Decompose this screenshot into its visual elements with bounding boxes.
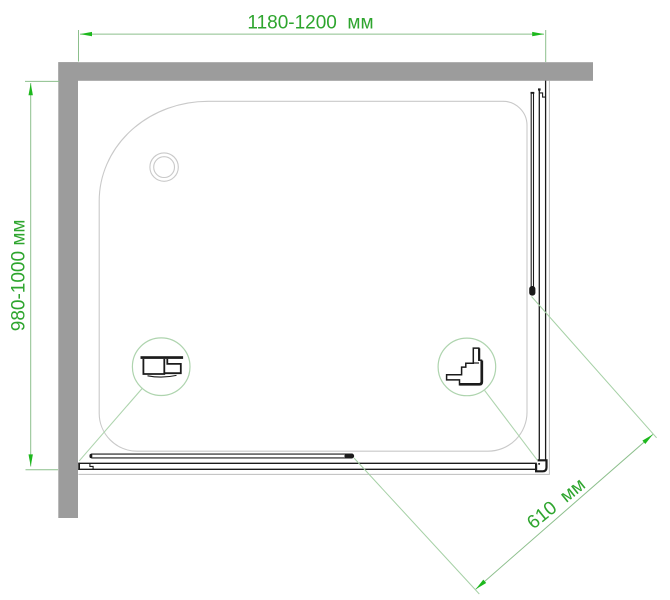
svg-text:1180-1200 мм: 1180-1200 мм (247, 12, 373, 33)
svg-text:980-1000 мм: 980-1000 мм (9, 220, 30, 332)
svg-text:610 мм: 610 мм (523, 474, 589, 533)
